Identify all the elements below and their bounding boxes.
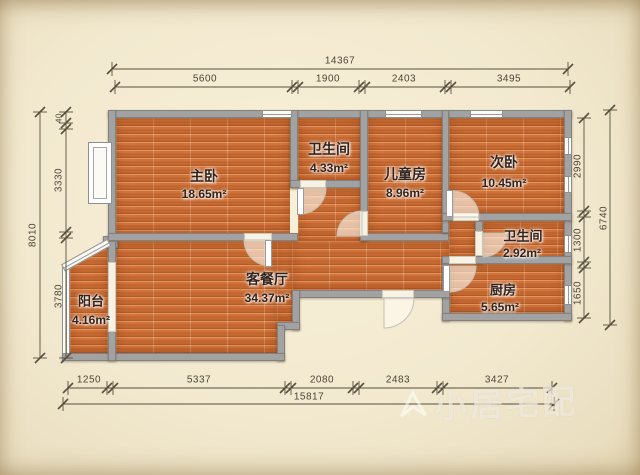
room-area-bath1: 4.33m² [310, 161, 348, 175]
room-area-second: 10.45m² [482, 176, 527, 190]
room-area-balcony: 4.16m² [72, 313, 110, 327]
wall-kitchen-bottom [442, 313, 572, 321]
vestibule-floor [449, 221, 475, 256]
dim-left-seg-3: 3780 [54, 284, 65, 308]
room-area-bath2: 2.92m² [503, 246, 541, 260]
wall-bottom-left [62, 353, 285, 361]
room-label-child: 儿童房 [384, 164, 426, 184]
door-leaf-master [265, 240, 272, 267]
door-opening-bath2 [475, 231, 483, 256]
entrance-opening [382, 290, 414, 298]
dim-bottom-total: 15817 [294, 392, 324, 403]
room-label-bath2: 卫生间 [503, 226, 542, 245]
window-balcony-left [62, 264, 70, 354]
door-opening-kitchen [449, 256, 476, 264]
door-opening-bath1 [300, 180, 326, 188]
watermark-text: 小居宅配 [433, 375, 579, 428]
bay-window-master [88, 142, 112, 204]
room-label-second: 次卧 [490, 152, 518, 172]
floor-plan: 主卧 18.65m² 卫生间 4.33m² 儿童房 8.96m² 次卧 10.4… [0, 0, 640, 475]
door-arc-entrance [384, 298, 414, 328]
dim-top-seg-1: 5600 [193, 74, 217, 85]
wall-entry [292, 290, 450, 298]
dim-right-seg-2: 1300 [573, 228, 584, 252]
dim-left-total: 8010 [28, 223, 39, 247]
dim-top-total: 14367 [325, 56, 355, 67]
dim-right-seg-3: 1650 [573, 281, 584, 305]
hallway-floor [298, 188, 360, 241]
dim-top-seg-4: 3495 [497, 74, 521, 85]
watermark-logo-icon [398, 389, 429, 420]
door-opening-second [453, 213, 479, 221]
room-label-kitchen: 厨房 [490, 280, 516, 299]
room-living-floor [292, 241, 449, 290]
window-top-child [385, 110, 422, 118]
wall-child-bottom [360, 233, 449, 241]
door-leaf-bath1 [297, 188, 304, 215]
window-right-second-a [564, 137, 572, 155]
wall-bath1-left [290, 110, 298, 188]
window-top-bath1 [262, 110, 292, 118]
dim-left-seg-2: 3330 [54, 168, 65, 192]
room-label-balcony: 阳台 [78, 291, 104, 310]
dim-top-seg-3: 2403 [392, 74, 416, 85]
door-leaf-second [446, 190, 453, 217]
window-right-kitchen [564, 285, 572, 305]
window-right-second-b [564, 176, 572, 193]
dim-top-seg-2: 1900 [316, 74, 340, 85]
dim-bottom-seg-2: 5337 [187, 375, 211, 386]
door-leaf-kitchen [443, 265, 450, 292]
dim-left-seg-1: 40 [55, 113, 64, 123]
room-area-kitchen: 5.65m² [481, 300, 519, 314]
door-opening-child [360, 211, 368, 236]
room-area-child: 8.96m² [386, 186, 424, 200]
dim-right-seg-1: 2990 [573, 154, 584, 178]
watermark: 小居宅配 [397, 375, 579, 429]
dim-bottom-seg-3: 2080 [310, 375, 334, 386]
room-area-living: 34.37m² [245, 291, 290, 305]
room-label-bath1: 卫生间 [308, 139, 350, 159]
window-right-bath2 [564, 235, 572, 253]
room-area-master: 18.65m² [182, 187, 227, 201]
window-top-second [470, 110, 503, 118]
dim-right-total: 6740 [599, 206, 610, 230]
room-label-living: 客餐厅 [246, 269, 288, 289]
dim-bottom-seg-1: 1250 [77, 375, 101, 386]
room-label-master: 主卧 [190, 166, 218, 186]
